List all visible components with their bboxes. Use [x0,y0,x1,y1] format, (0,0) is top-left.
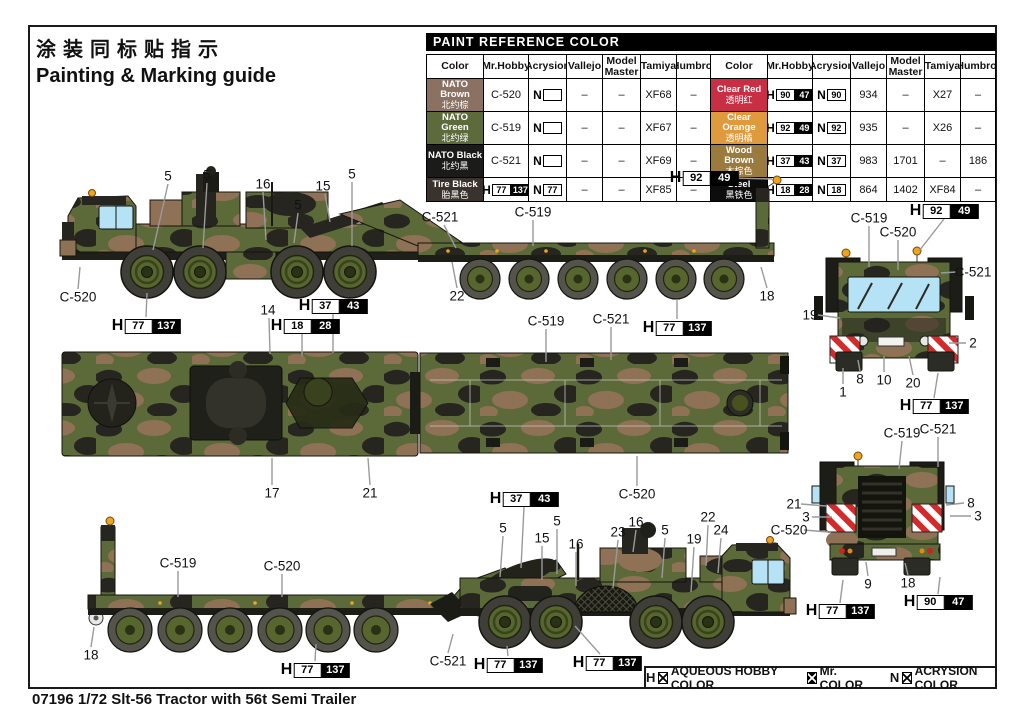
legend-box-icon [902,672,911,684]
legend-prefix: N [890,670,899,685]
leader-line [909,356,913,375]
footer-title: 07196 1/72 Slt-56 Tractor with 56t Semi … [32,691,356,708]
leader-line [368,458,370,485]
leader-line [761,267,767,288]
view-front [814,247,974,371]
leader-line [575,626,600,654]
legend-label: Mr. COLOR [820,664,868,692]
view-plan [62,352,789,456]
view-side-right [88,517,796,652]
legend-item: NACRYSION COLOR [890,664,995,692]
color-legend: HAQUEOUS HOBBY COLORMr. COLORNACRYSION C… [644,666,997,689]
leader-line [938,577,940,594]
leader-line [866,562,868,576]
leader-line [507,646,508,656]
leader-line [448,634,453,653]
legend-box-icon [807,672,817,684]
leader-line [733,178,772,179]
leader-line [934,373,938,398]
view-rear [812,452,954,575]
legend-box-icon [658,672,667,684]
leader-line [521,507,524,568]
leader-line [78,267,80,289]
leader-line [899,441,902,469]
legend-item: Mr. COLOR [807,664,868,692]
leader-line [315,644,316,661]
legend-item: HAQUEOUS HOBBY COLOR [646,664,785,692]
leader-line [941,272,956,273]
legend-label: ACRYSION COLOR [915,664,995,692]
legend-label: AQUEOUS HOBBY COLOR [671,664,785,692]
leader-line [269,318,270,354]
leader-line [840,580,843,603]
legend-prefix: H [646,670,655,685]
vehicle-illustrations [0,0,1024,713]
leader-line [919,219,944,251]
leader-line [146,293,147,317]
leader-line [91,627,94,647]
painting-guide-page: 涂装同标贴指示 Painting & Marking guide PAINT R… [0,0,1024,713]
leader-line [452,262,457,288]
